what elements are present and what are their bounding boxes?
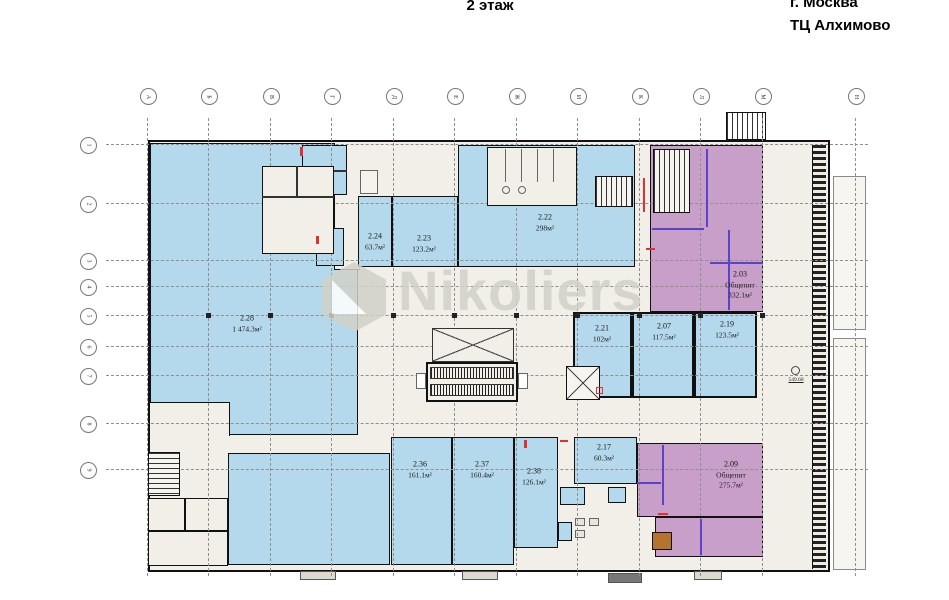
facade-element bbox=[462, 571, 498, 580]
axis-bubble-top: Л bbox=[693, 88, 710, 105]
axis-label-top: Г bbox=[329, 95, 335, 98]
elevator-shaft-mid bbox=[566, 366, 600, 400]
watermark-logo-notch bbox=[332, 280, 366, 314]
room-2-36-label: 2.36161.1м² bbox=[408, 460, 432, 481]
escalator-run-1 bbox=[430, 367, 514, 379]
axis-bubble-top: К bbox=[632, 88, 649, 105]
axis-bubble-left: 7 bbox=[80, 368, 97, 385]
axis-bubble-top: В bbox=[263, 88, 280, 105]
grid-line-vertical bbox=[700, 118, 701, 576]
room-2-24-label: 2.2463.7м² bbox=[365, 232, 385, 253]
room-2-19-label: 2.19123.5м² bbox=[715, 320, 739, 341]
fire-cabinet bbox=[524, 440, 527, 448]
axis-bubble-left: 3 bbox=[80, 253, 97, 270]
grid-line-vertical bbox=[639, 118, 640, 576]
tech-room-small bbox=[558, 522, 572, 541]
axis-label-left: 3 bbox=[86, 260, 92, 263]
axis-label-left: 9 bbox=[86, 469, 92, 472]
room-2-37 bbox=[452, 437, 514, 565]
wc-block-222 bbox=[487, 147, 577, 206]
wc-stall-line bbox=[521, 149, 522, 182]
atrium-void bbox=[432, 328, 514, 362]
room-2-23 bbox=[392, 196, 458, 267]
room-2-38-label: 2.38126.1м² bbox=[522, 467, 546, 488]
grid-line-vertical bbox=[393, 118, 394, 576]
service-notch bbox=[150, 402, 230, 436]
facade-element bbox=[608, 573, 642, 583]
axis-label-left: 2 bbox=[86, 203, 92, 206]
axis-label-top: Е bbox=[452, 95, 458, 99]
axis-bubble-top: Н bbox=[848, 88, 865, 105]
axis-label-left: 7 bbox=[86, 375, 92, 378]
fire-hydrant-box bbox=[596, 387, 603, 394]
axis-bubble-top: М bbox=[755, 88, 772, 105]
axis-bubble-left: 5 bbox=[80, 308, 97, 325]
axis-label-top: Н bbox=[853, 94, 859, 98]
wc-stall-line bbox=[505, 149, 506, 182]
axis-label-top: В bbox=[268, 94, 274, 98]
fire-line bbox=[658, 513, 668, 515]
page-title-floor: 2 этаж bbox=[430, 0, 550, 14]
axis-label-top: А bbox=[145, 94, 151, 98]
grid-line-vertical bbox=[762, 118, 763, 576]
grid-line-vertical bbox=[147, 118, 148, 576]
structural-column bbox=[698, 313, 703, 318]
fire-line bbox=[646, 248, 655, 250]
axis-bubble-top: Ж bbox=[509, 88, 526, 105]
room-2-28-label: 2.281 474.3м² bbox=[232, 314, 262, 335]
room-2-09-label: 2.09Общепит275.7м² bbox=[716, 459, 746, 490]
facade-element bbox=[694, 571, 722, 580]
tech-room-orange bbox=[652, 532, 672, 550]
structural-column bbox=[268, 313, 273, 318]
elevator-shaft-top bbox=[595, 176, 633, 207]
tech-core-line2 bbox=[296, 166, 298, 196]
room-2-23-label: 2.23123.2м² bbox=[412, 234, 436, 255]
wc-stall bbox=[589, 518, 599, 526]
partition bbox=[706, 149, 708, 227]
page-title-city: г. Москва bbox=[790, 0, 858, 11]
axis-bubble-left: 2 bbox=[80, 196, 97, 213]
axis-label-top: Л bbox=[698, 94, 704, 98]
grid-line-vertical bbox=[577, 118, 578, 576]
axis-bubble-top: И bbox=[570, 88, 587, 105]
axis-label-left: 1 bbox=[86, 144, 92, 147]
stairwell-203 bbox=[653, 149, 690, 213]
axis-label-top: Ж bbox=[514, 94, 520, 99]
room-2-22-label: 2.22298м² bbox=[536, 213, 554, 234]
axis-bubble-top: А bbox=[140, 88, 157, 105]
structural-column bbox=[206, 313, 211, 318]
structural-column bbox=[391, 313, 396, 318]
partition bbox=[662, 445, 664, 505]
axis-bubble-left: 8 bbox=[80, 416, 97, 433]
floor-plan: 549.68 Nikoliers 2.281 474.3м² 2.2463.7м… bbox=[0, 0, 949, 600]
room-2-37-label: 2.37160.4м² bbox=[470, 460, 494, 481]
elevation-mark-value: 549.68 bbox=[779, 377, 813, 383]
partition bbox=[700, 519, 702, 555]
partition bbox=[710, 262, 763, 264]
axis-bubble-top: Е bbox=[447, 88, 464, 105]
partition bbox=[652, 228, 704, 230]
stairwell-left bbox=[148, 452, 180, 496]
partition bbox=[637, 482, 661, 484]
axis-label-left: 6 bbox=[86, 346, 92, 349]
grid-line-vertical bbox=[208, 118, 209, 576]
wc-fixture-block bbox=[360, 170, 378, 194]
axis-label-left: 8 bbox=[86, 423, 92, 426]
exterior-platform-top bbox=[833, 176, 866, 330]
axis-label-top: Д bbox=[391, 94, 397, 98]
room-2-17-label: 2.1760.3м² bbox=[594, 443, 614, 464]
right-wall-hatch bbox=[812, 145, 826, 569]
axis-bubble-top: Г bbox=[324, 88, 341, 105]
grid-line-horizontal bbox=[106, 423, 868, 424]
tech-left-line2 bbox=[184, 498, 186, 532]
fire-line bbox=[560, 440, 568, 442]
axis-bubble-left: 4 bbox=[80, 279, 97, 296]
escalator-run-2 bbox=[430, 384, 514, 396]
roof-shaft-block bbox=[726, 112, 766, 140]
room-2-03-label: 2.03Общепит332.1м² bbox=[725, 269, 755, 300]
elevation-mark-icon bbox=[791, 366, 800, 375]
structural-column bbox=[760, 313, 765, 318]
tech-left-line bbox=[148, 530, 228, 532]
room-2-21-label: 2.21102м² bbox=[593, 324, 611, 345]
axis-bubble-left: 1 bbox=[80, 137, 97, 154]
axis-bubble-top: Д bbox=[386, 88, 403, 105]
axis-bubble-top: Б bbox=[201, 88, 218, 105]
grid-line-vertical bbox=[855, 118, 856, 576]
room-2-38 bbox=[514, 437, 558, 548]
page-title-building: ТЦ Алхимово bbox=[790, 17, 890, 34]
axis-label-left: 5 bbox=[86, 315, 92, 318]
axis-label-top: М bbox=[760, 94, 766, 99]
tech-core-228 bbox=[262, 166, 334, 254]
watermark-text: Nikoliers bbox=[398, 258, 644, 323]
tech-room-small bbox=[608, 487, 626, 503]
fire-line bbox=[643, 178, 645, 212]
wc-basin bbox=[502, 186, 510, 194]
wc-stall-line bbox=[537, 149, 538, 182]
axis-label-top: К bbox=[637, 94, 643, 98]
wc-stall-line bbox=[553, 149, 554, 182]
room-2-07-label: 2.07117.5м² bbox=[652, 322, 676, 343]
grid-line-horizontal bbox=[106, 144, 868, 145]
escalator-landing bbox=[416, 373, 426, 389]
fire-cabinet bbox=[300, 147, 303, 156]
axis-label-top: И bbox=[575, 94, 581, 98]
axis-label-top: Б bbox=[206, 95, 212, 98]
tech-core-line bbox=[262, 196, 334, 198]
exterior-platform-bottom bbox=[833, 338, 866, 570]
axis-label-left: 4 bbox=[86, 286, 92, 289]
escalator-landing bbox=[518, 373, 528, 389]
tech-room-small bbox=[560, 487, 585, 505]
wc-basin bbox=[518, 186, 526, 194]
tech-rooms-left bbox=[148, 498, 228, 566]
axis-bubble-left: 9 bbox=[80, 462, 97, 479]
room-2-36 bbox=[391, 437, 452, 565]
fire-cabinet bbox=[316, 236, 319, 244]
axis-bubble-left: 6 bbox=[80, 339, 97, 356]
